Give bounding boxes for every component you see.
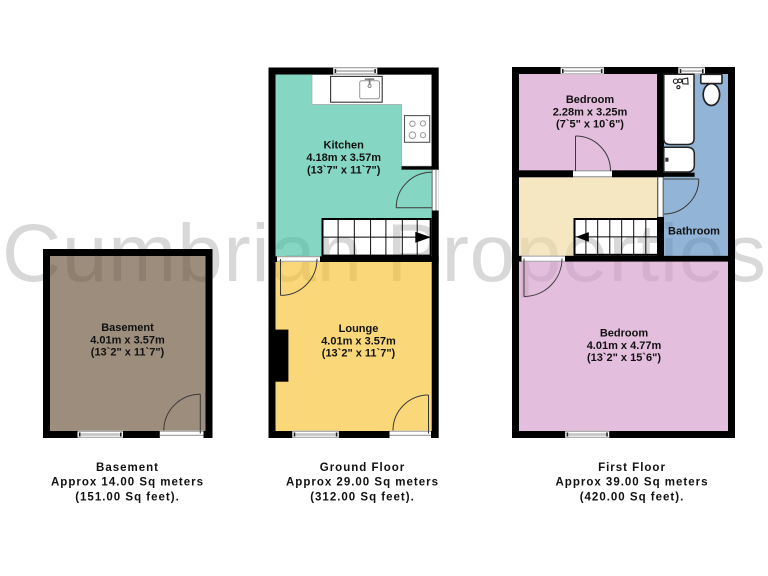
svg-text:4.01m x 3.57m: 4.01m x 3.57m (321, 335, 396, 347)
svg-text:Approx 14.00 Sq meters: Approx 14.00 Sq meters (51, 477, 204, 489)
svg-text:Basement: Basement (101, 322, 154, 334)
svg-text:4.18m x 3.57m: 4.18m x 3.57m (306, 152, 381, 164)
svg-text:First Floor: First Floor (598, 462, 666, 474)
svg-text:Bedroom: Bedroom (566, 94, 615, 106)
svg-text:4.01m x 3.57m: 4.01m x 3.57m (90, 334, 165, 346)
svg-text:4.01m x 4.77m: 4.01m x 4.77m (587, 340, 662, 352)
svg-text:Approx 39.00 Sq meters: Approx 39.00 Sq meters (555, 477, 708, 489)
svg-text:(13`7" x 11`7"): (13`7" x 11`7") (307, 164, 381, 176)
svg-text:Basement: Basement (96, 462, 159, 474)
svg-text:(7`5" x 10`6"): (7`5" x 10`6") (556, 119, 624, 131)
svg-text:Approx 29.00 Sq meters: Approx 29.00 Sq meters (286, 477, 439, 489)
svg-text:(420.00 Sq feet).: (420.00 Sq feet). (580, 491, 685, 503)
svg-text:Bathroom: Bathroom (668, 225, 720, 237)
svg-text:(13`2" x 11`7"): (13`2" x 11`7") (322, 348, 396, 360)
svg-text:Lounge: Lounge (339, 323, 379, 335)
svg-text:Bedroom: Bedroom (600, 328, 649, 340)
svg-text:(13`2" x 15`6"): (13`2" x 15`6") (587, 352, 661, 364)
svg-text:(312.00 Sq feet).: (312.00 Sq feet). (310, 491, 415, 503)
svg-text:2.28m x 3.25m: 2.28m x 3.25m (553, 106, 628, 118)
svg-text:(151.00 Sq feet).: (151.00 Sq feet). (75, 491, 180, 503)
svg-text:Ground Floor: Ground Floor (320, 462, 405, 474)
svg-text:(13`2" x 11`7"): (13`2" x 11`7") (91, 347, 165, 359)
svg-text:Kitchen: Kitchen (324, 140, 365, 152)
